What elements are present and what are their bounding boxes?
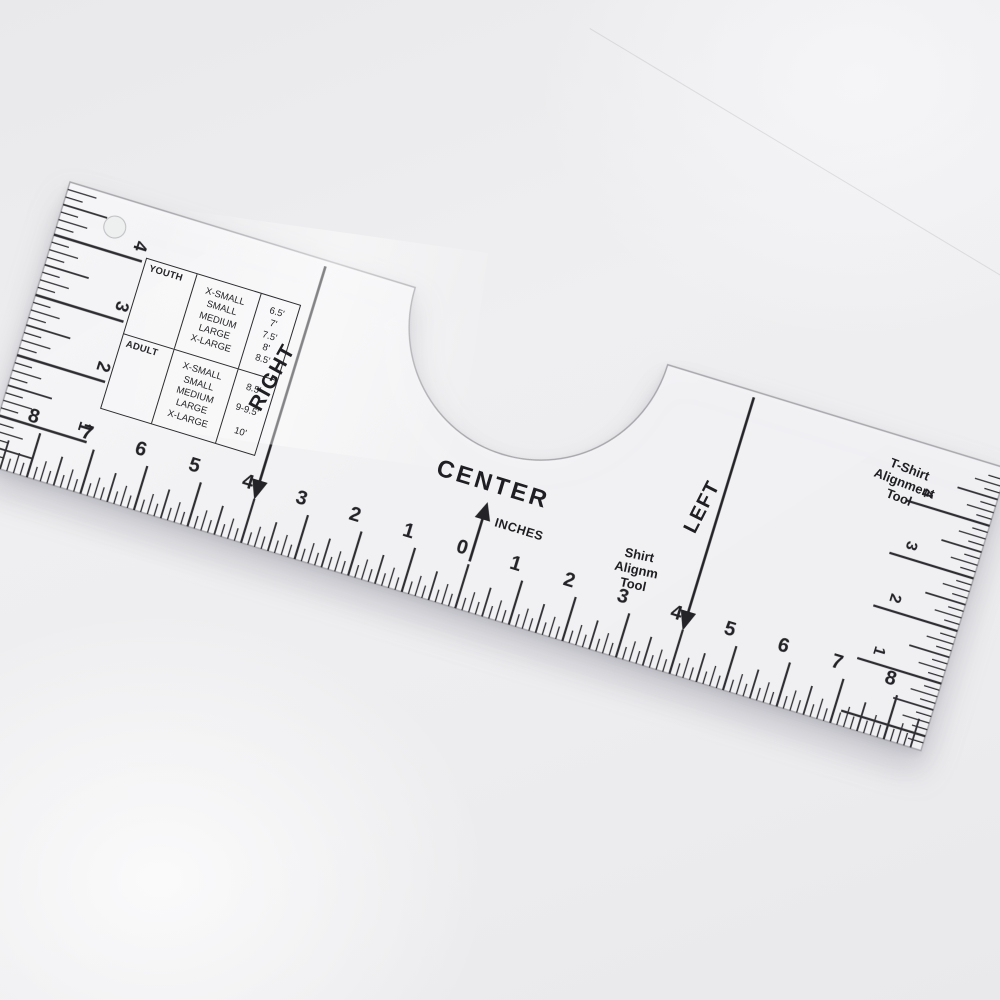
shirt-align-tool-label: Shirt Alignm Tool	[610, 544, 662, 597]
tshirt-alignment-ruler: 87654321012345678 4321 4321 YOUTH X-SMAL…	[0, 182, 1000, 751]
adult-value: 10'	[232, 425, 247, 440]
photo-scene: 87654321012345678 4321 4321 YOUTH X-SMAL…	[0, 0, 1000, 1000]
